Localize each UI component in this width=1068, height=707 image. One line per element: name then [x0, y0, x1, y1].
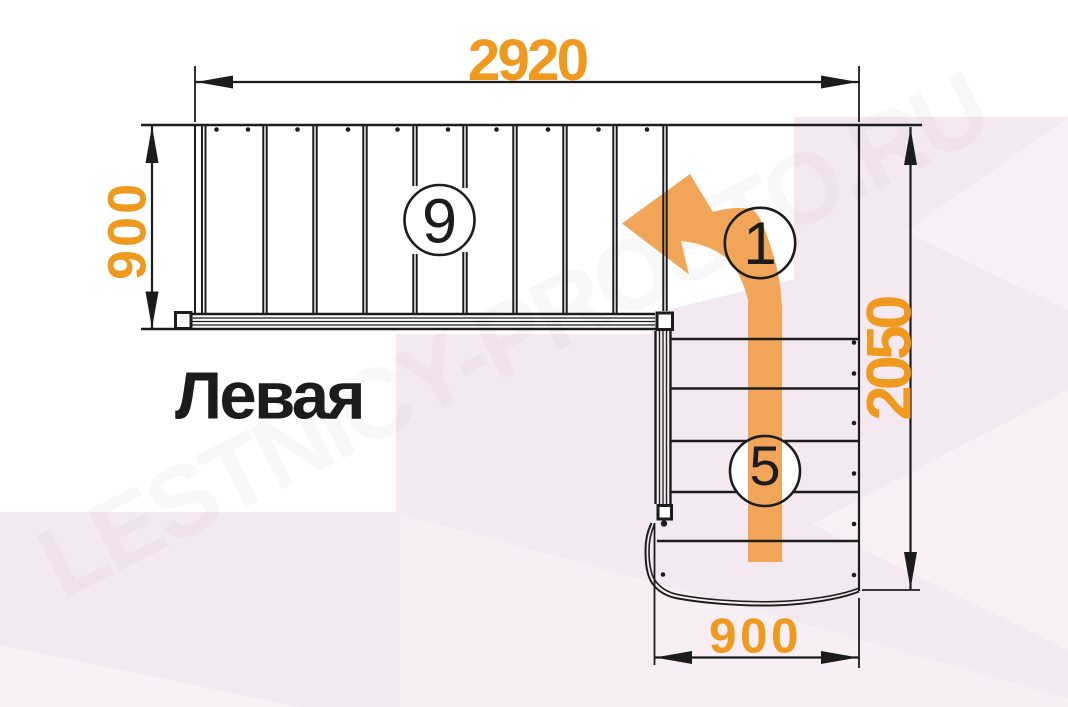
svg-text:Левая: Левая	[175, 359, 363, 434]
svg-text:5: 5	[749, 434, 780, 497]
svg-text:1: 1	[743, 210, 776, 277]
svg-text:900: 900	[709, 609, 802, 664]
svg-text:9: 9	[422, 187, 457, 257]
svg-text:900: 900	[98, 181, 158, 280]
svg-text:2920: 2920	[468, 28, 588, 93]
svg-text:2050: 2050	[855, 297, 925, 421]
